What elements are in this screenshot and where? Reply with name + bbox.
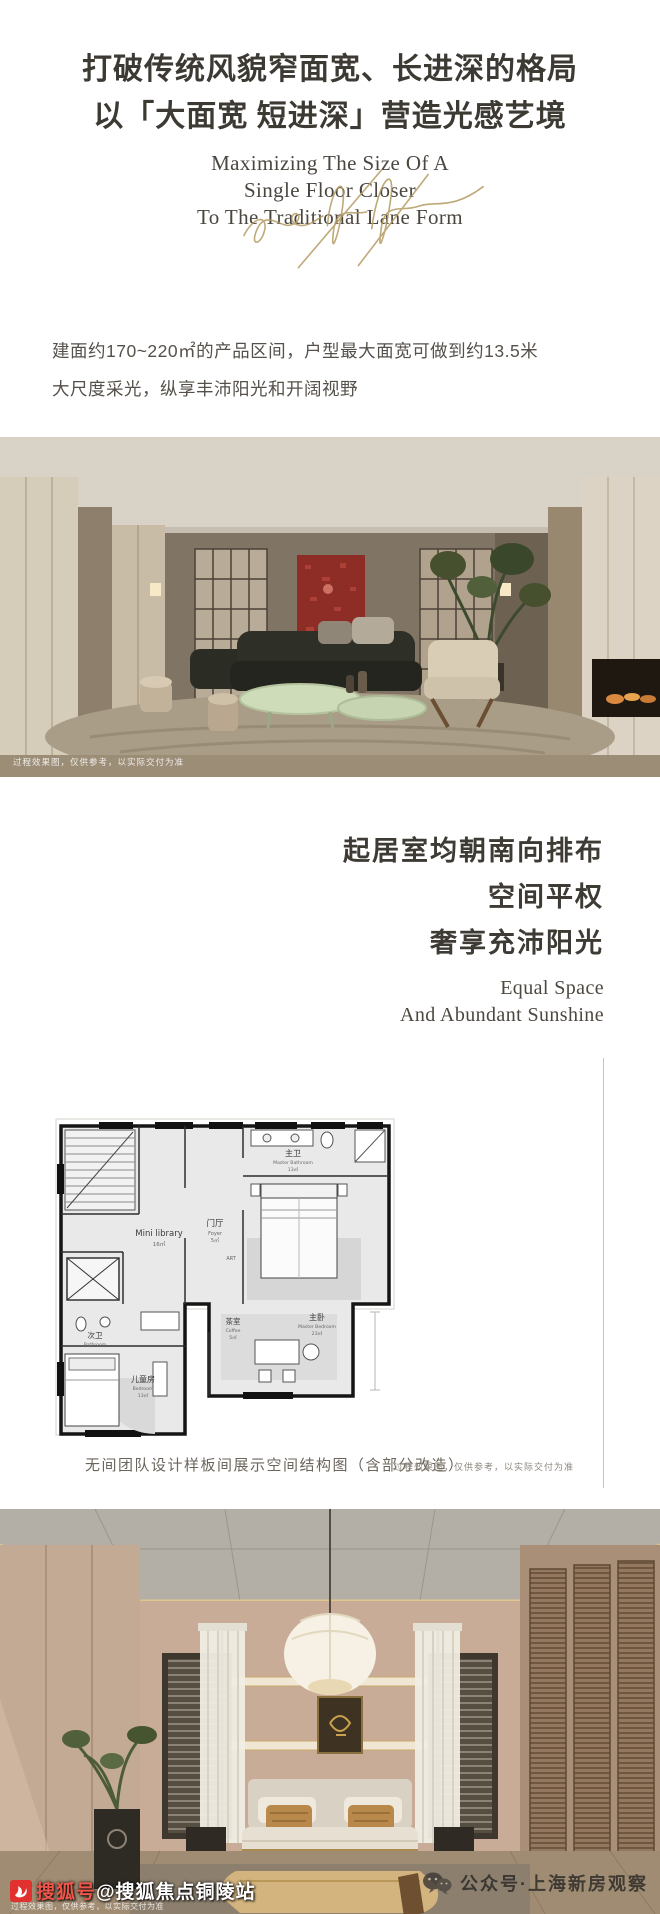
article-page: 打破传统风貌窄面宽、长进深的格局 以「大面宽 短进深」营造光感艺境 Maximi… bbox=[0, 0, 660, 1914]
svg-text:23㎡: 23㎡ bbox=[312, 1330, 323, 1337]
bedroom-illustration bbox=[0, 1509, 660, 1914]
svg-text:5㎡: 5㎡ bbox=[229, 1334, 237, 1341]
plan-disclaimer: 过程效果图，仅供参考，以实际交付为准 bbox=[394, 1460, 574, 1473]
floor-plan: Mini library 16㎡ 门厅 Foyer 5㎡ 主卫 Master B… bbox=[55, 1118, 395, 1440]
section2-cn-line2: 空间平权 bbox=[343, 874, 604, 920]
label-tea-room: 茶室 bbox=[226, 1316, 241, 1326]
plan-dimension-line bbox=[603, 1058, 604, 1488]
subtitle-line1: Maximizing The Size Of A bbox=[0, 150, 660, 177]
living-room-illustration bbox=[0, 437, 660, 777]
svg-text:Foyer: Foyer bbox=[208, 1231, 223, 1237]
svg-text:13㎡: 13㎡ bbox=[288, 1166, 299, 1173]
floor-plan-drawing: Mini library 16㎡ 门厅 Foyer 5㎡ 主卫 Master B… bbox=[55, 1118, 395, 1440]
label-mini-library: Mini library bbox=[135, 1229, 183, 1239]
intro-line2: 大尺度采光，纵享丰沛阳光和开阔视野 bbox=[52, 370, 612, 408]
wall-sconce-left bbox=[150, 583, 161, 596]
svg-text:Coffee: Coffee bbox=[226, 1328, 241, 1334]
label-second-bath: 次卫 bbox=[88, 1330, 103, 1340]
section2-en-line1: Equal Space bbox=[343, 975, 604, 1002]
wall-sconce-right bbox=[500, 583, 511, 596]
sohu-logo-icon bbox=[10, 1880, 32, 1902]
label-master-bath: 主卫 bbox=[285, 1148, 301, 1158]
svg-text:Bedroom: Bedroom bbox=[133, 1386, 154, 1392]
plan-elevator bbox=[67, 1258, 119, 1300]
bedroom-photo bbox=[0, 1509, 660, 1914]
section2-heading: 起居室均朝南向排布 空间平权 奢享充沛阳光 Equal Space And Ab… bbox=[343, 828, 604, 1029]
svg-text:5㎡: 5㎡ bbox=[211, 1237, 219, 1244]
label-master-bed: 主卧 bbox=[309, 1312, 325, 1322]
svg-text:13㎡: 13㎡ bbox=[138, 1392, 149, 1399]
section2-cn-line3: 奢享充沛阳光 bbox=[343, 920, 604, 966]
label-kids-room: 儿童房 bbox=[131, 1374, 155, 1384]
svg-text:Master Bedroom: Master Bedroom bbox=[298, 1324, 336, 1330]
plan-stairs bbox=[65, 1130, 135, 1210]
wechat-watermark-text: 公众号·上海新房观察 bbox=[460, 1870, 648, 1896]
intro-line1: 建面约170~220㎡的产品区间，户型最大面宽可做到约13.5米 bbox=[52, 332, 612, 370]
headline-line2: 以「大面宽 短进深」营造光感艺境 bbox=[0, 93, 660, 140]
sohu-watermark: 搜狐号@搜狐焦点铜陵站 bbox=[10, 1877, 256, 1904]
section2-cn-line1: 起居室均朝南向排布 bbox=[343, 828, 604, 874]
headline-line1: 打破传统风貌窄面宽、长进深的格局 bbox=[0, 46, 660, 93]
plan-dimension-marks bbox=[370, 1312, 380, 1390]
svg-text:Master Bathroom: Master Bathroom bbox=[273, 1160, 313, 1166]
living-room-photo: 过程效果图，仅供参考，以实际交付为准 bbox=[0, 437, 660, 777]
fireplace bbox=[592, 659, 660, 717]
section2-en-line2: And Abundant Sunshine bbox=[343, 1002, 604, 1029]
hero-section: 打破传统风貌窄面宽、长进深的格局 以「大面宽 短进深」营造光感艺境 Maximi… bbox=[0, 0, 660, 231]
label-art: ART bbox=[226, 1256, 237, 1262]
label-foyer: 门厅 bbox=[206, 1218, 224, 1229]
living-photo-disclaimer: 过程效果图，仅供参考，以实际交付为准 bbox=[13, 756, 184, 768]
wechat-logo-icon bbox=[422, 1871, 452, 1895]
intro-paragraph: 建面约170~220㎡的产品区间，户型最大面宽可做到约13.5米 大尺度采光，纵… bbox=[52, 332, 612, 408]
wechat-watermark: 公众号·上海新房观察 bbox=[422, 1870, 648, 1896]
svg-text:Bathroom: Bathroom bbox=[84, 1342, 107, 1348]
sohu-watermark-text: 搜狐号@搜狐焦点铜陵站 bbox=[36, 1877, 256, 1904]
artwork-frame bbox=[318, 1697, 362, 1753]
svg-text:16㎡: 16㎡ bbox=[153, 1240, 166, 1248]
subtitle-line2: Single Floor Closer bbox=[0, 177, 660, 204]
bedroom-photo-disclaimer: 过程效果图，仅供参考，以实际交付为准 bbox=[11, 1901, 164, 1912]
subtitle-line3: To The Traditional Lane Form bbox=[0, 204, 660, 231]
